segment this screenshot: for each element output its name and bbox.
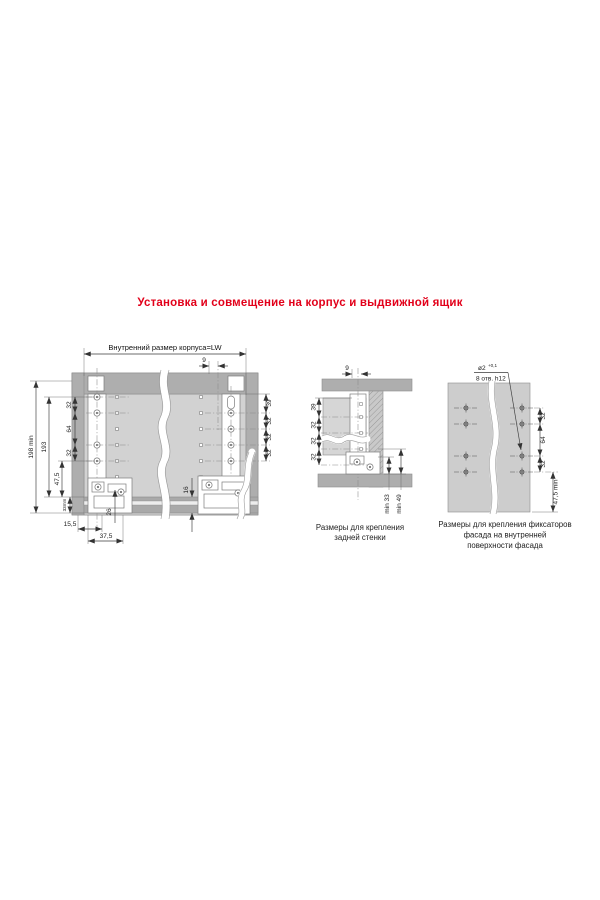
- dim-label-16: 16: [183, 486, 190, 494]
- cabinet-left-panel: [72, 373, 84, 515]
- dim-label-32i: 32: [540, 412, 547, 420]
- dim-label-198: 198 min: [28, 435, 35, 459]
- svg-text:Размеры для крепления: Размеры для крепления: [316, 523, 404, 532]
- dim-9-back: 9: [342, 365, 371, 378]
- back-wall-view: 9 39 32 32 32 min 33: [311, 365, 413, 542]
- dim-label-39: 39: [266, 399, 273, 407]
- svg-text:фасада на внутренней: фасада на внутренней: [464, 531, 547, 540]
- dim-label-min33: min 33: [384, 494, 391, 514]
- dim-label-64b: 64: [540, 436, 547, 444]
- left-runner: [88, 478, 132, 513]
- dim-label-32b: 32: [66, 449, 73, 457]
- facade-view: ø2 +0,1 8 отв. h12 32 64 32 47,5 min: [438, 363, 571, 550]
- dim-label-min49: min 49: [396, 494, 403, 514]
- hole-tol-label: +0,1: [488, 363, 498, 368]
- front-bracket-right: [228, 376, 244, 391]
- technical-drawing: Внутренний размер корпуса=LW 9 3: [0, 0, 600, 900]
- svg-text:задней стенки: задней стенки: [334, 533, 385, 542]
- dim-label-155: 15,5: [64, 521, 77, 528]
- svg-text:Размеры для крепления фиксатор: Размеры для крепления фиксаторов: [438, 520, 571, 529]
- hole-count-label: 8 отв. h12: [476, 376, 506, 383]
- dim-label-193: 193: [41, 441, 48, 452]
- back-runner: [346, 452, 380, 474]
- dim-label-32f: 32: [311, 421, 318, 429]
- dim-label-32g: 32: [311, 437, 318, 445]
- main-view: Внутренний размер корпуса=LW 9 3: [28, 343, 273, 544]
- dim-label-33mm: 33mm: [62, 498, 67, 511]
- front-bracket-left: [88, 376, 104, 391]
- dim-label-475min: 47,5 min: [553, 479, 560, 504]
- dim-label-9-back: 9: [345, 365, 349, 372]
- hole-dia-label: ø2: [478, 365, 486, 372]
- dim-label-475: 47,5: [54, 472, 61, 485]
- dim-label-375: 37,5: [100, 533, 113, 540]
- dim-label-32e: 32: [266, 449, 273, 457]
- dim-label-32h: 32: [311, 453, 318, 461]
- dim-label-lw: Внутренний размер корпуса=LW: [108, 343, 222, 352]
- dim-label-32a: 32: [66, 401, 73, 409]
- dim-label-9: 9: [202, 357, 206, 364]
- back-view-caption: Размеры для крепления задней стенки: [316, 523, 404, 542]
- dim-facade-right-chain: 32 64 32 47,5 min: [532, 408, 560, 512]
- dim-label-64: 64: [66, 425, 73, 433]
- facade-view-caption: Размеры для крепления фиксаторов фасада …: [438, 520, 571, 550]
- dim-label-32j: 32: [540, 460, 547, 468]
- dim-label-32c: 32: [266, 417, 273, 425]
- dim-label-32d: 32: [266, 433, 273, 441]
- dim-label-39b: 39: [311, 403, 318, 411]
- svg-text:поверхности фасада: поверхности фасада: [467, 541, 543, 550]
- cabinet-top-side: [322, 379, 412, 391]
- page: Установка и совмещение на корпус и выдви…: [0, 0, 600, 900]
- dim-label-26: 26: [106, 508, 113, 516]
- cabinet-bottom-side: [318, 474, 412, 487]
